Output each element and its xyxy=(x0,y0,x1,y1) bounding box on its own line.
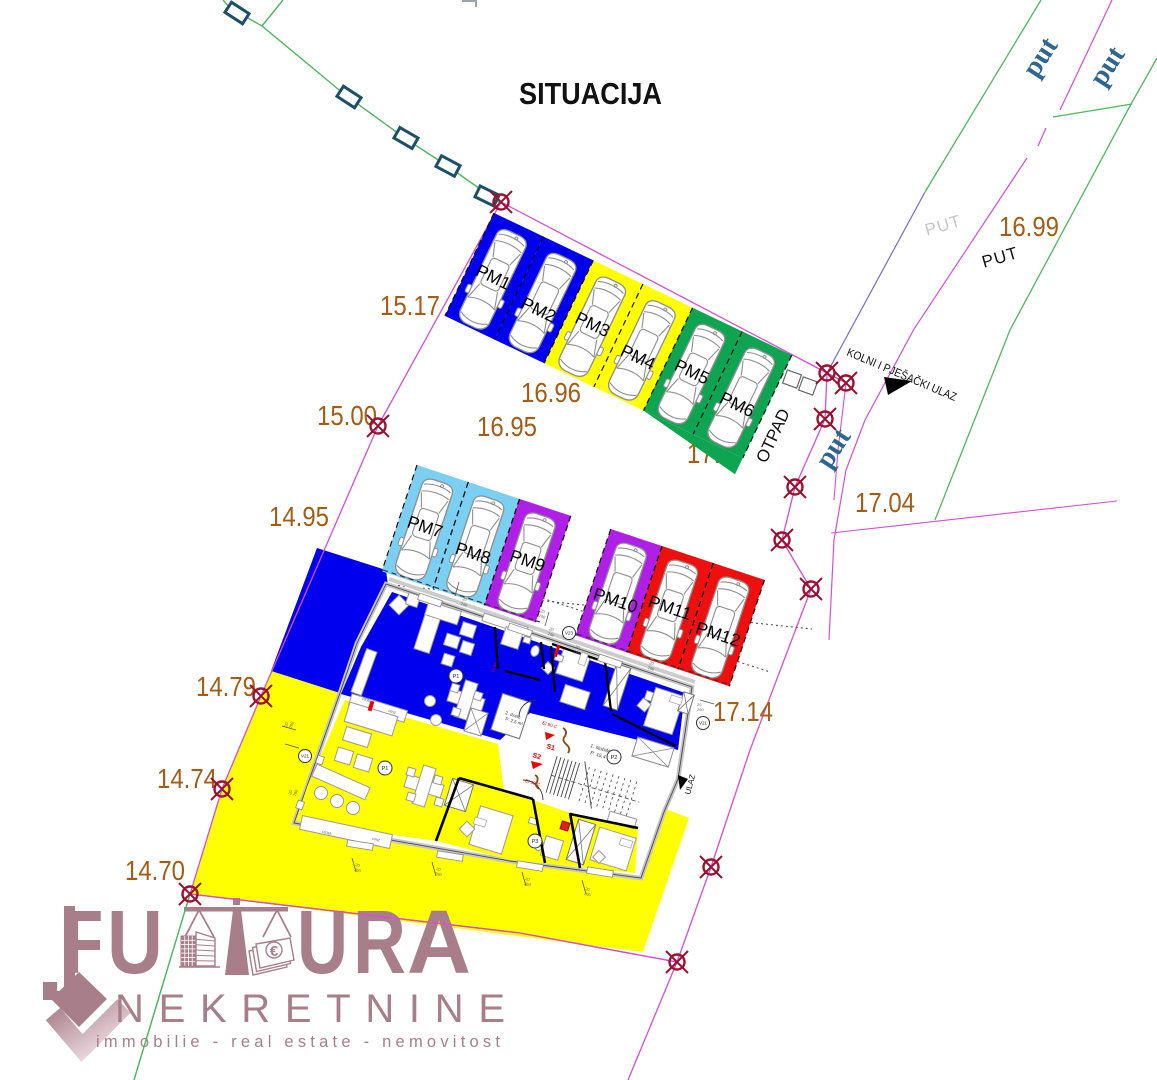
svg-text:V21: V21 xyxy=(301,754,310,759)
svg-text:A: A xyxy=(407,893,471,993)
svg-text:14.95: 14.95 xyxy=(269,501,329,532)
svg-text:16.99: 16.99 xyxy=(999,211,1059,242)
svg-text:14.70: 14.70 xyxy=(125,855,185,886)
svg-text:14.79: 14.79 xyxy=(196,671,256,702)
svg-text:P1: P1 xyxy=(382,766,389,772)
svg-text:15.17: 15.17 xyxy=(380,290,440,321)
svg-text:17.04: 17.04 xyxy=(855,487,915,518)
svg-text:immobilie - real estate - nemo: immobilie - real estate - nemovitost xyxy=(96,1033,500,1051)
svg-text:P3: P3 xyxy=(532,839,539,845)
svg-text:SITUACIJA: SITUACIJA xyxy=(519,76,662,111)
svg-text:NEKRETNINE: NEKRETNINE xyxy=(115,987,505,1031)
svg-text:€: € xyxy=(270,943,279,960)
svg-text:16.95: 16.95 xyxy=(477,411,537,442)
svg-text:P1: P1 xyxy=(453,674,460,680)
svg-text:16.96: 16.96 xyxy=(521,377,581,408)
svg-text:P2: P2 xyxy=(611,755,618,761)
svg-text:14.74: 14.74 xyxy=(157,763,217,794)
svg-text:V21: V21 xyxy=(699,721,708,726)
svg-text:V23: V23 xyxy=(565,631,574,636)
svg-text:260: 260 xyxy=(697,707,704,712)
svg-text:17.14: 17.14 xyxy=(713,696,773,727)
svg-text:U: U xyxy=(107,893,163,993)
svg-text:R: R xyxy=(353,893,406,993)
